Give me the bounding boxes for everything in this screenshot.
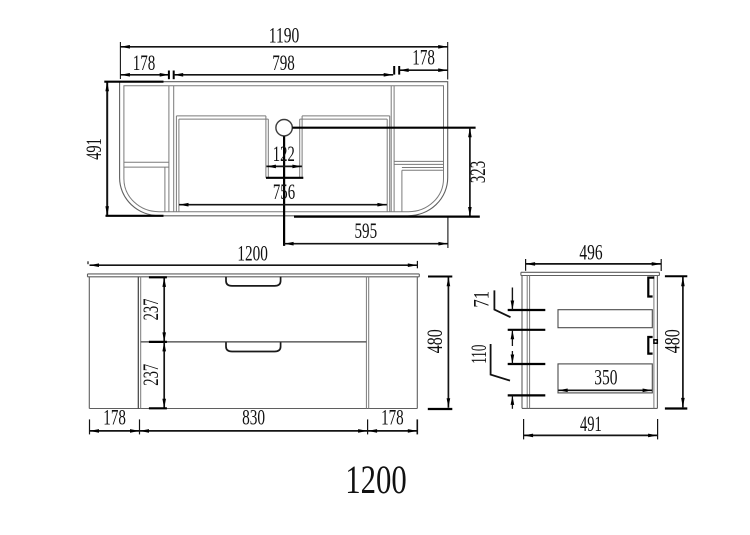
svg-text:798: 798: [272, 50, 295, 75]
svg-text:110: 110: [466, 345, 491, 364]
svg-text:1190: 1190: [269, 23, 300, 48]
svg-text:71: 71: [468, 291, 493, 308]
svg-text:595: 595: [355, 218, 378, 243]
svg-text:1200: 1200: [345, 457, 407, 502]
svg-text:237: 237: [138, 299, 163, 321]
svg-text:178: 178: [103, 404, 126, 429]
svg-text:237: 237: [138, 364, 163, 386]
svg-text:480: 480: [422, 329, 447, 353]
svg-text:480: 480: [659, 329, 684, 353]
svg-text:350: 350: [594, 365, 617, 390]
svg-text:756: 756: [273, 179, 295, 204]
svg-text:178: 178: [133, 50, 156, 75]
svg-text:323: 323: [465, 161, 490, 183]
svg-text:830: 830: [242, 404, 265, 429]
svg-text:122: 122: [273, 141, 295, 166]
svg-text:1200: 1200: [237, 240, 268, 265]
svg-text:178: 178: [412, 45, 435, 70]
svg-text:491: 491: [580, 411, 602, 436]
svg-text:491: 491: [81, 138, 106, 160]
svg-text:178: 178: [381, 404, 404, 429]
svg-text:496: 496: [579, 240, 602, 265]
